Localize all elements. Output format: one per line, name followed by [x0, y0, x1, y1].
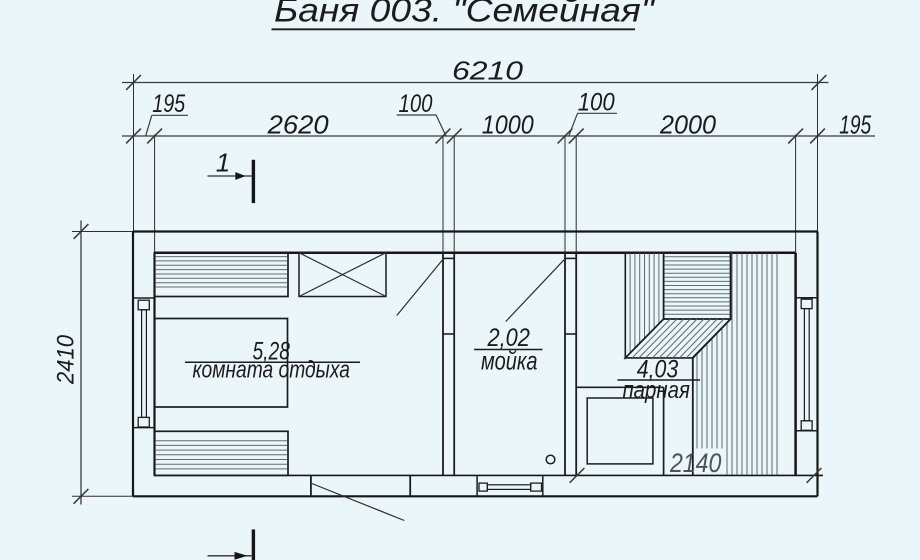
svg-text:6210: 6210 [452, 56, 524, 86]
svg-text:мойка: мойка [481, 346, 538, 376]
svg-text:1000: 1000 [482, 110, 534, 140]
svg-text:1: 1 [216, 147, 230, 177]
svg-text:100: 100 [578, 89, 615, 117]
svg-text:комната отдыха: комната отдыха [192, 357, 350, 384]
svg-text:195: 195 [839, 110, 871, 140]
svg-text:Баня 003. "Семейная": Баня 003. "Семейная" [274, 0, 655, 29]
svg-text:2410: 2410 [53, 334, 80, 385]
svg-text:195: 195 [152, 90, 185, 118]
svg-text:2000: 2000 [659, 110, 716, 140]
svg-text:парная: парная [622, 377, 690, 404]
svg-text:2620: 2620 [267, 110, 330, 140]
svg-text:2140: 2140 [669, 448, 721, 478]
svg-text:100: 100 [399, 90, 433, 118]
